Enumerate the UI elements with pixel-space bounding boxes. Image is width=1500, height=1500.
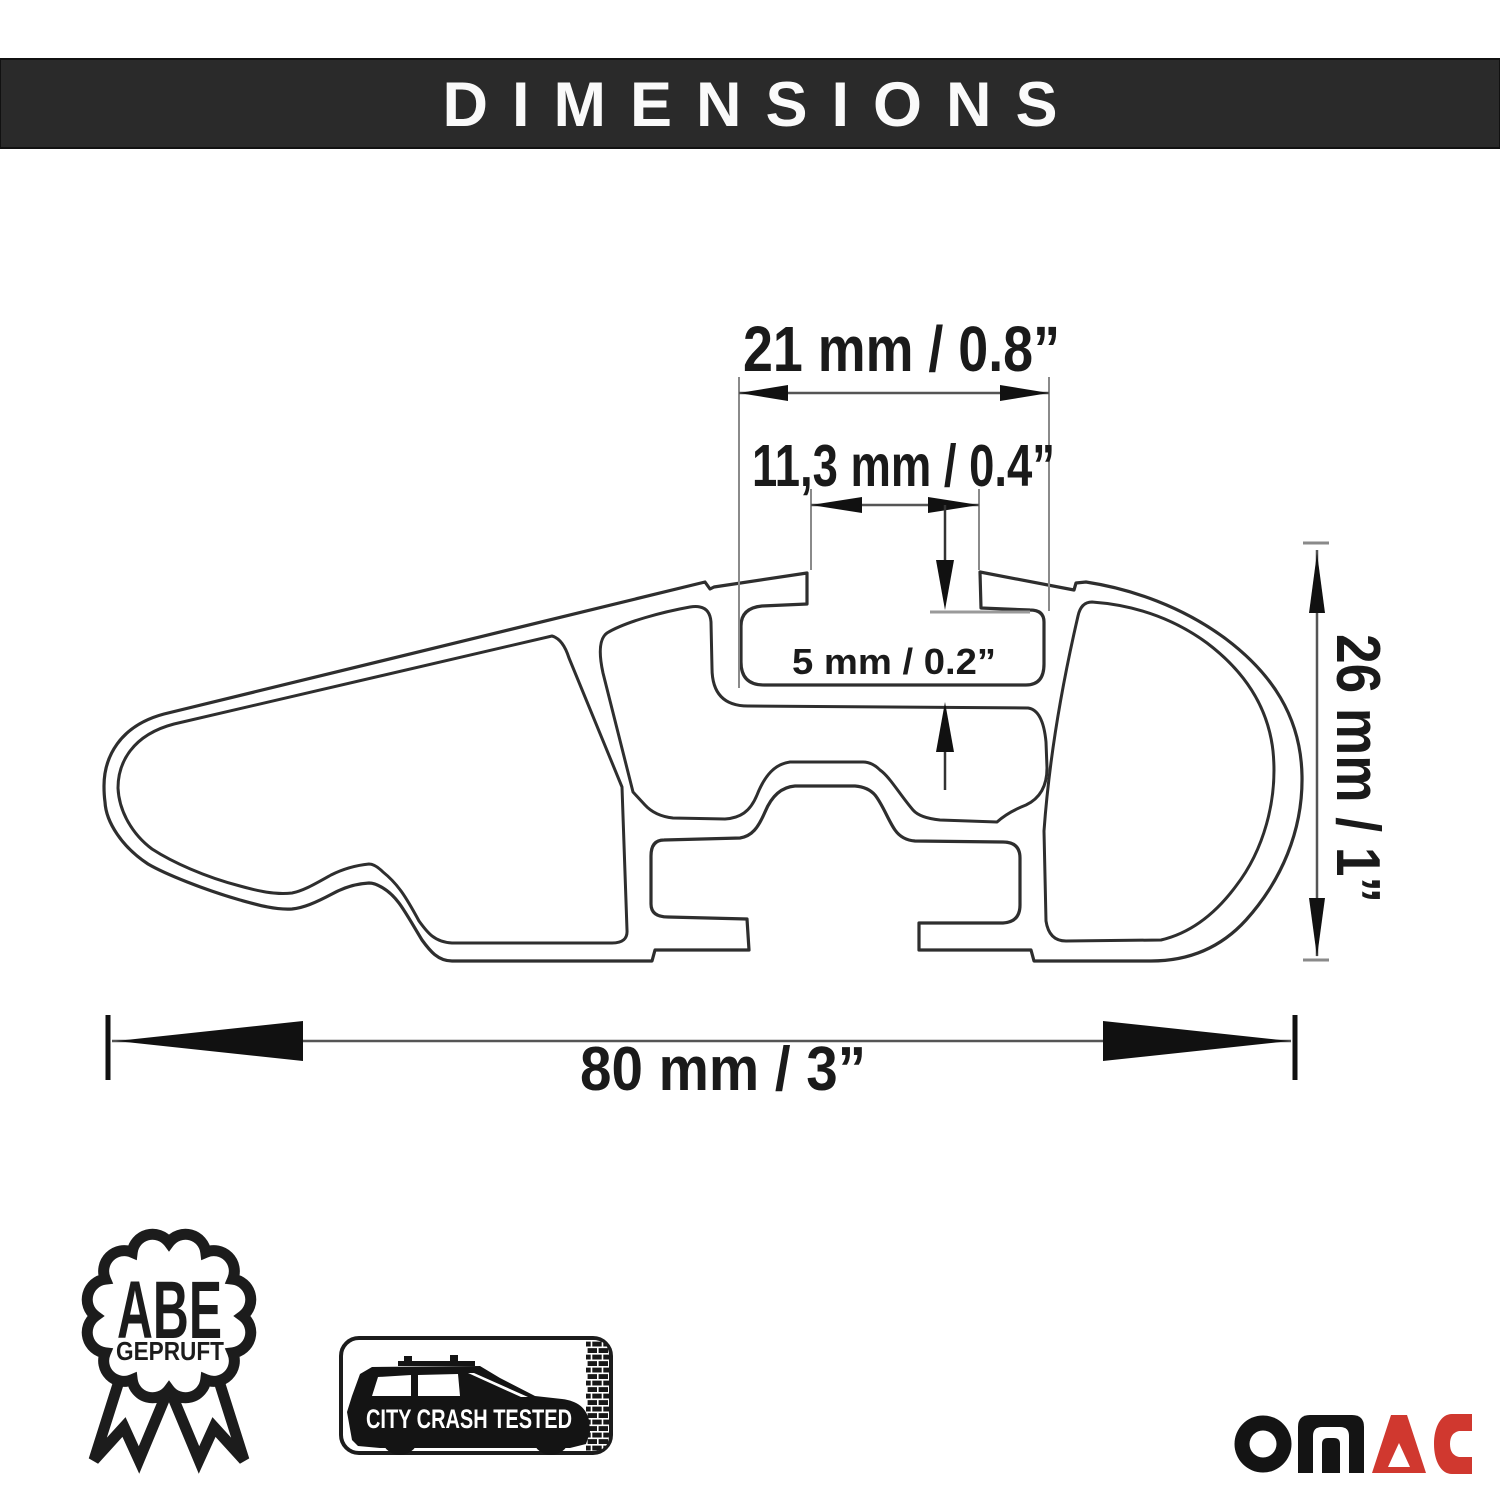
svg-text:DIMENSIONS: DIMENSIONS — [442, 70, 1081, 140]
svg-text:80 mm / 3”: 80 mm / 3” — [580, 1035, 866, 1104]
svg-text:26 mm / 1”: 26 mm / 1” — [1323, 634, 1392, 903]
svg-text:21 mm / 0.8”: 21 mm / 0.8” — [743, 313, 1060, 385]
svg-text:11,3 mm / 0.4”: 11,3 mm / 0.4” — [752, 433, 1055, 499]
svg-text:5 mm / 0.2”: 5 mm / 0.2” — [792, 641, 996, 682]
svg-text:GEPRUFT: GEPRUFT — [116, 1336, 224, 1366]
svg-text:CITY CRASH TESTED: CITY CRASH TESTED — [366, 1404, 572, 1434]
